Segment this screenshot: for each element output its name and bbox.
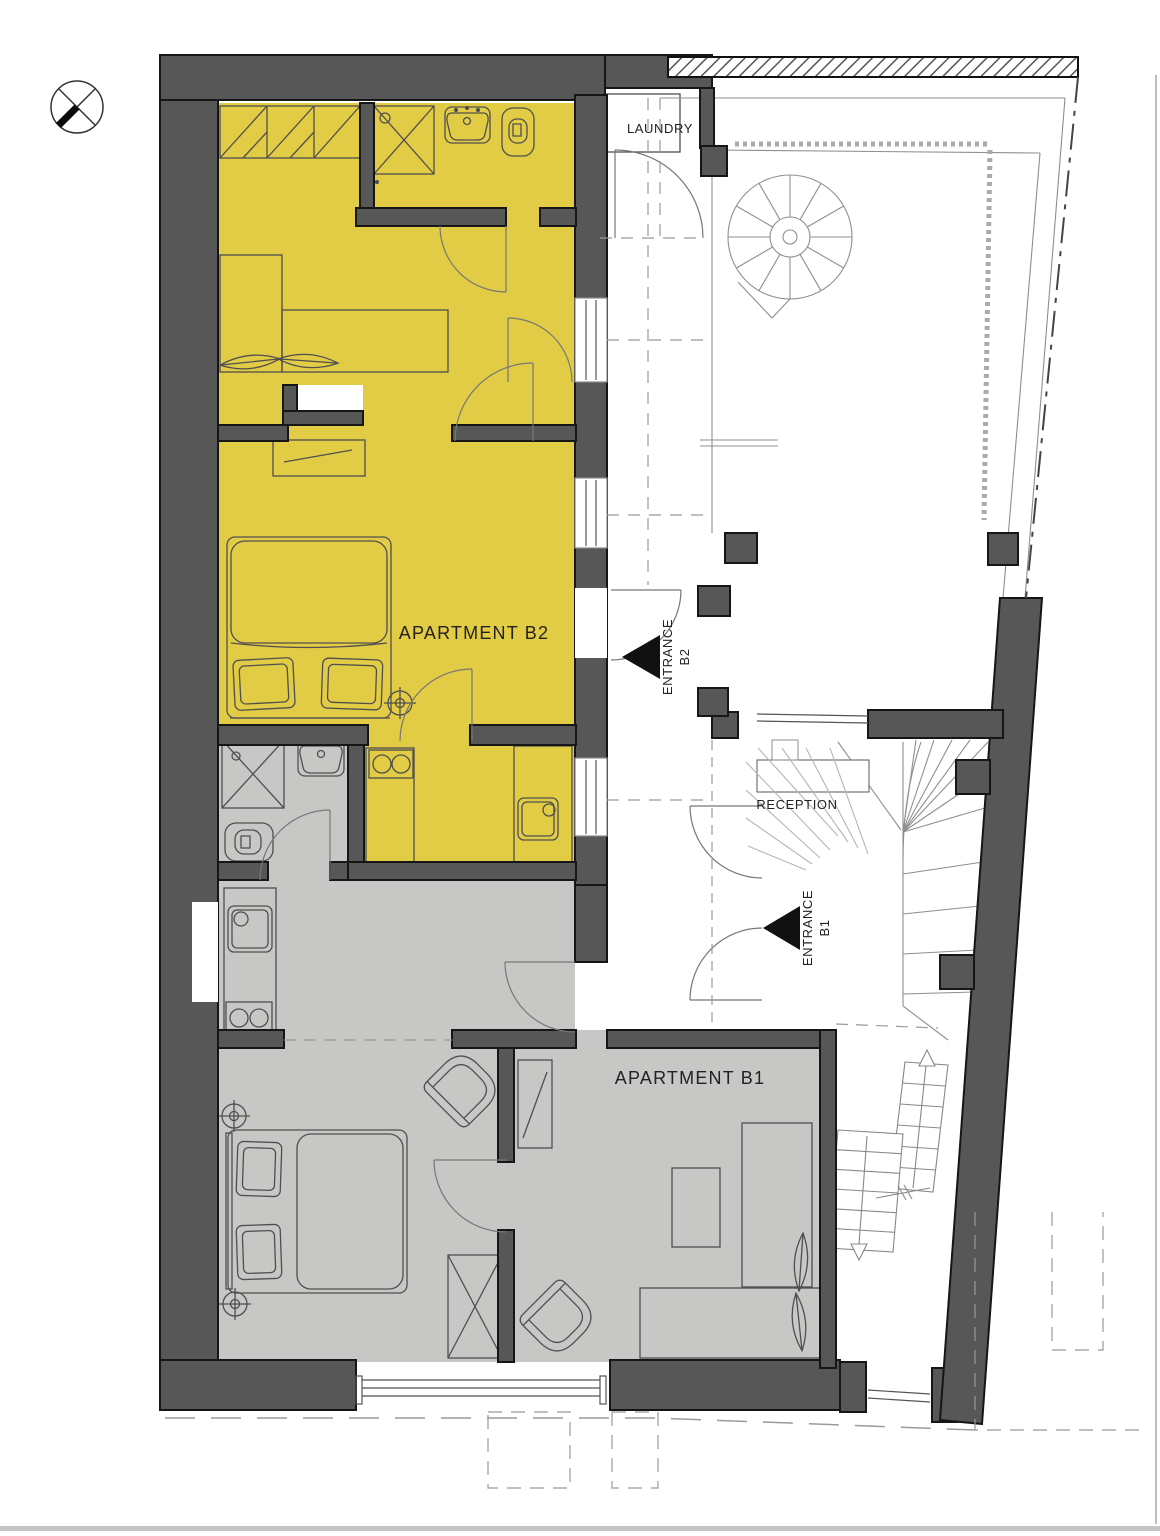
floor-plan-canvas: LAUNDRY APARTMENT B2 APARTMENT B1 RECEPT… — [0, 0, 1160, 1536]
wall-bottom-mid — [610, 1360, 840, 1410]
label-entrance-b2: ENTRANCE — [660, 619, 675, 695]
wall-left — [160, 55, 218, 1410]
pillar — [940, 955, 974, 989]
pillar — [988, 533, 1018, 565]
label-apartment-b2: APARTMENT B2 — [399, 623, 549, 643]
wall-top — [160, 55, 605, 100]
floor-plan-page: LAUNDRY APARTMENT B2 APARTMENT B1 RECEPT… — [0, 0, 1160, 1536]
wall-bottom-left — [160, 1360, 356, 1410]
pillar — [700, 88, 714, 148]
label-entrance-b1-number: B1 — [817, 919, 832, 936]
pillar — [701, 146, 727, 176]
pillar — [956, 760, 990, 794]
wall-bottom-right-a — [840, 1362, 866, 1412]
label-laundry: LAUNDRY — [627, 121, 693, 136]
label-entrance-b1: ENTRANCE — [800, 890, 815, 966]
wall-courtyard-bottom — [868, 710, 1003, 738]
sheet-bottom-band — [0, 1526, 1160, 1531]
pillar — [725, 533, 757, 563]
pillar — [698, 586, 730, 616]
party-wall-hatch — [668, 57, 1078, 77]
wall-hall — [575, 885, 607, 962]
label-apartment-b1: APARTMENT B1 — [615, 1068, 765, 1088]
label-reception: RECEPTION — [756, 797, 837, 812]
pillar — [698, 688, 728, 716]
label-entrance-b2-number: B2 — [677, 648, 692, 665]
